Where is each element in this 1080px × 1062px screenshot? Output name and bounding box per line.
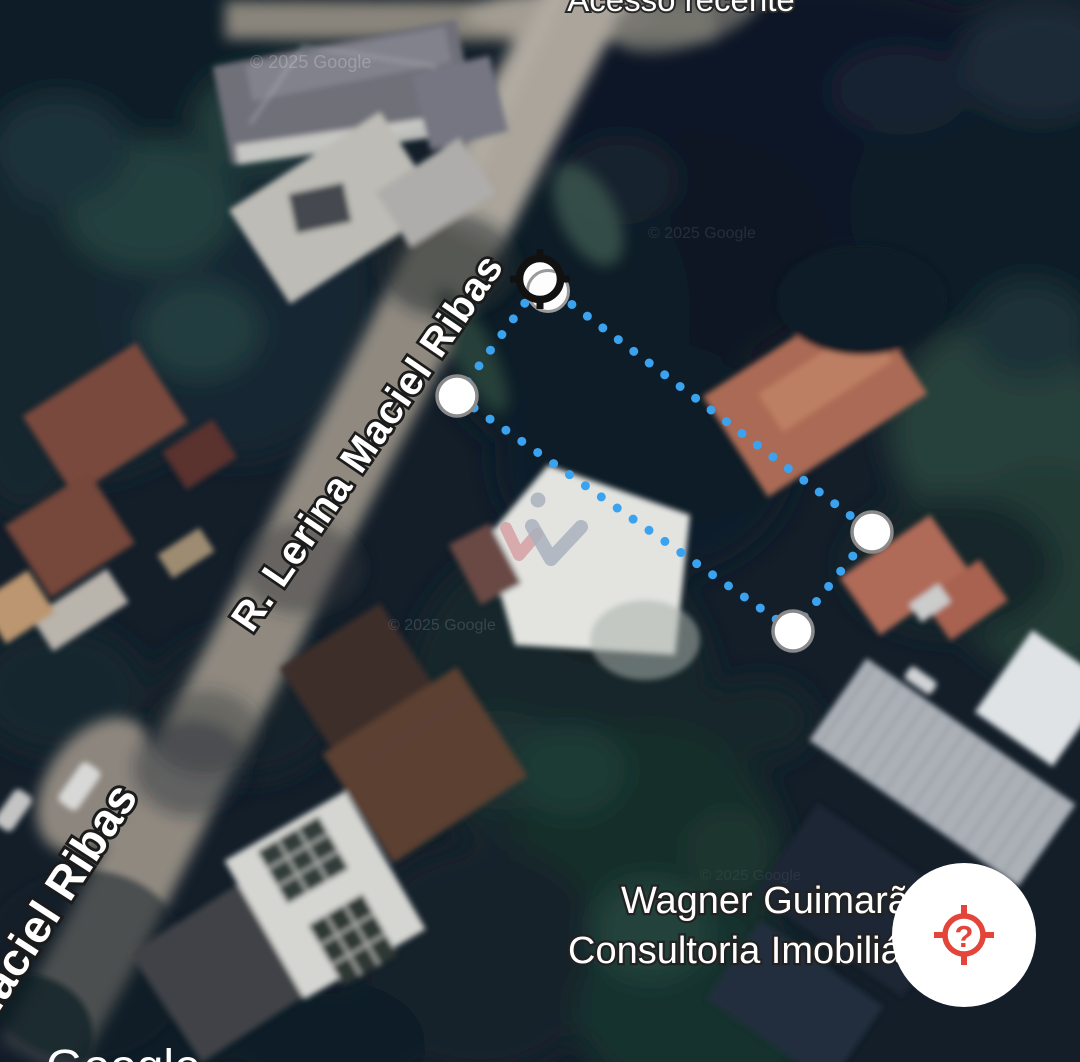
- svg-text:Consultoria Imobiliária: Consultoria Imobiliária: [568, 930, 945, 972]
- svg-text:Google: Google: [46, 1041, 201, 1062]
- svg-text:Acesso recente: Acesso recente: [567, 0, 794, 18]
- svg-text:© 2025 Google: © 2025 Google: [250, 52, 371, 72]
- svg-text:?: ?: [955, 919, 974, 954]
- svg-text:© 2025 Google: © 2025 Google: [648, 225, 756, 242]
- svg-text:© 2025 Google: © 2025 Google: [388, 617, 496, 634]
